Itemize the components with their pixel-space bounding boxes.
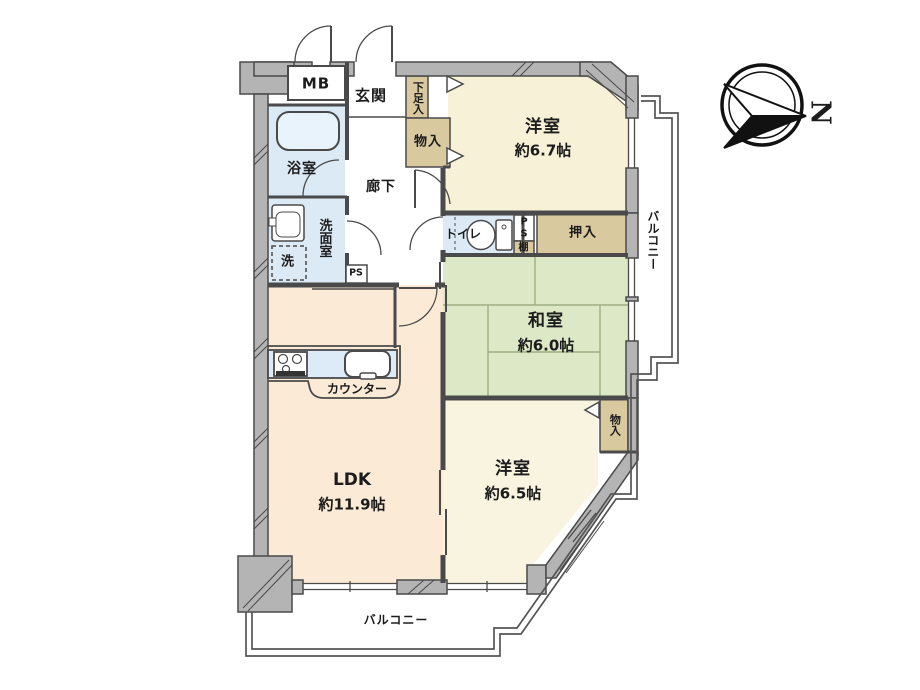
corner-block-sw [238,556,292,612]
label-ldk-name: LDK [333,471,371,491]
washroom-door [347,221,381,255]
compass [722,65,806,148]
label-entrance: 玄関 [355,87,387,104]
label-ldk-area: 約11.9帖 [318,496,385,513]
floorplan-page: MB 玄関 下足入 物入 浴室 廊下 洗面室 洗 PS トイレ P S 棚 押入… [0,0,920,690]
label-western-ne-area: 約6.7帖 [515,142,572,159]
toilet-door [410,217,443,250]
compass-needle-outline [724,84,806,116]
label-bathroom: 浴室 [287,161,317,177]
label-japanese-name: 和室 [528,312,564,332]
label-ps-hall: PS [349,269,363,280]
label-shelf: 棚 [519,242,530,254]
label-western-s-area: 約6.5帖 [485,485,542,502]
washbasin [272,205,304,241]
label-balcony-bottom: バルコニー [364,614,429,628]
label-japanese-area: 約6.0帖 [518,337,575,354]
label-shoe-closet: 下足入 [411,82,424,115]
label-western-s-name: 洋室 [495,460,531,480]
label-ps-p: P [520,216,527,228]
label-meter-box: MB [302,75,330,92]
label-laundry: 洗 [281,256,295,271]
label-counter: カウンター [327,383,387,397]
bathtub [277,112,339,150]
compass-north-label: N [804,100,835,126]
label-hallway: 廊下 [366,179,396,195]
label-toilet: トイレ [445,228,481,242]
room-ldk [268,285,443,583]
label-oshiire: 押入 [569,227,597,242]
label-entrance-closet: 物入 [414,136,442,151]
label-ps-s: S [520,228,527,240]
label-balcony-right: バルコニー [645,210,659,270]
label-western-ne-name: 洋室 [525,118,561,138]
label-washroom: 洗面室 [316,219,331,258]
label-south-closet: 物入 [608,414,621,436]
floorplan-drawing [0,0,920,690]
